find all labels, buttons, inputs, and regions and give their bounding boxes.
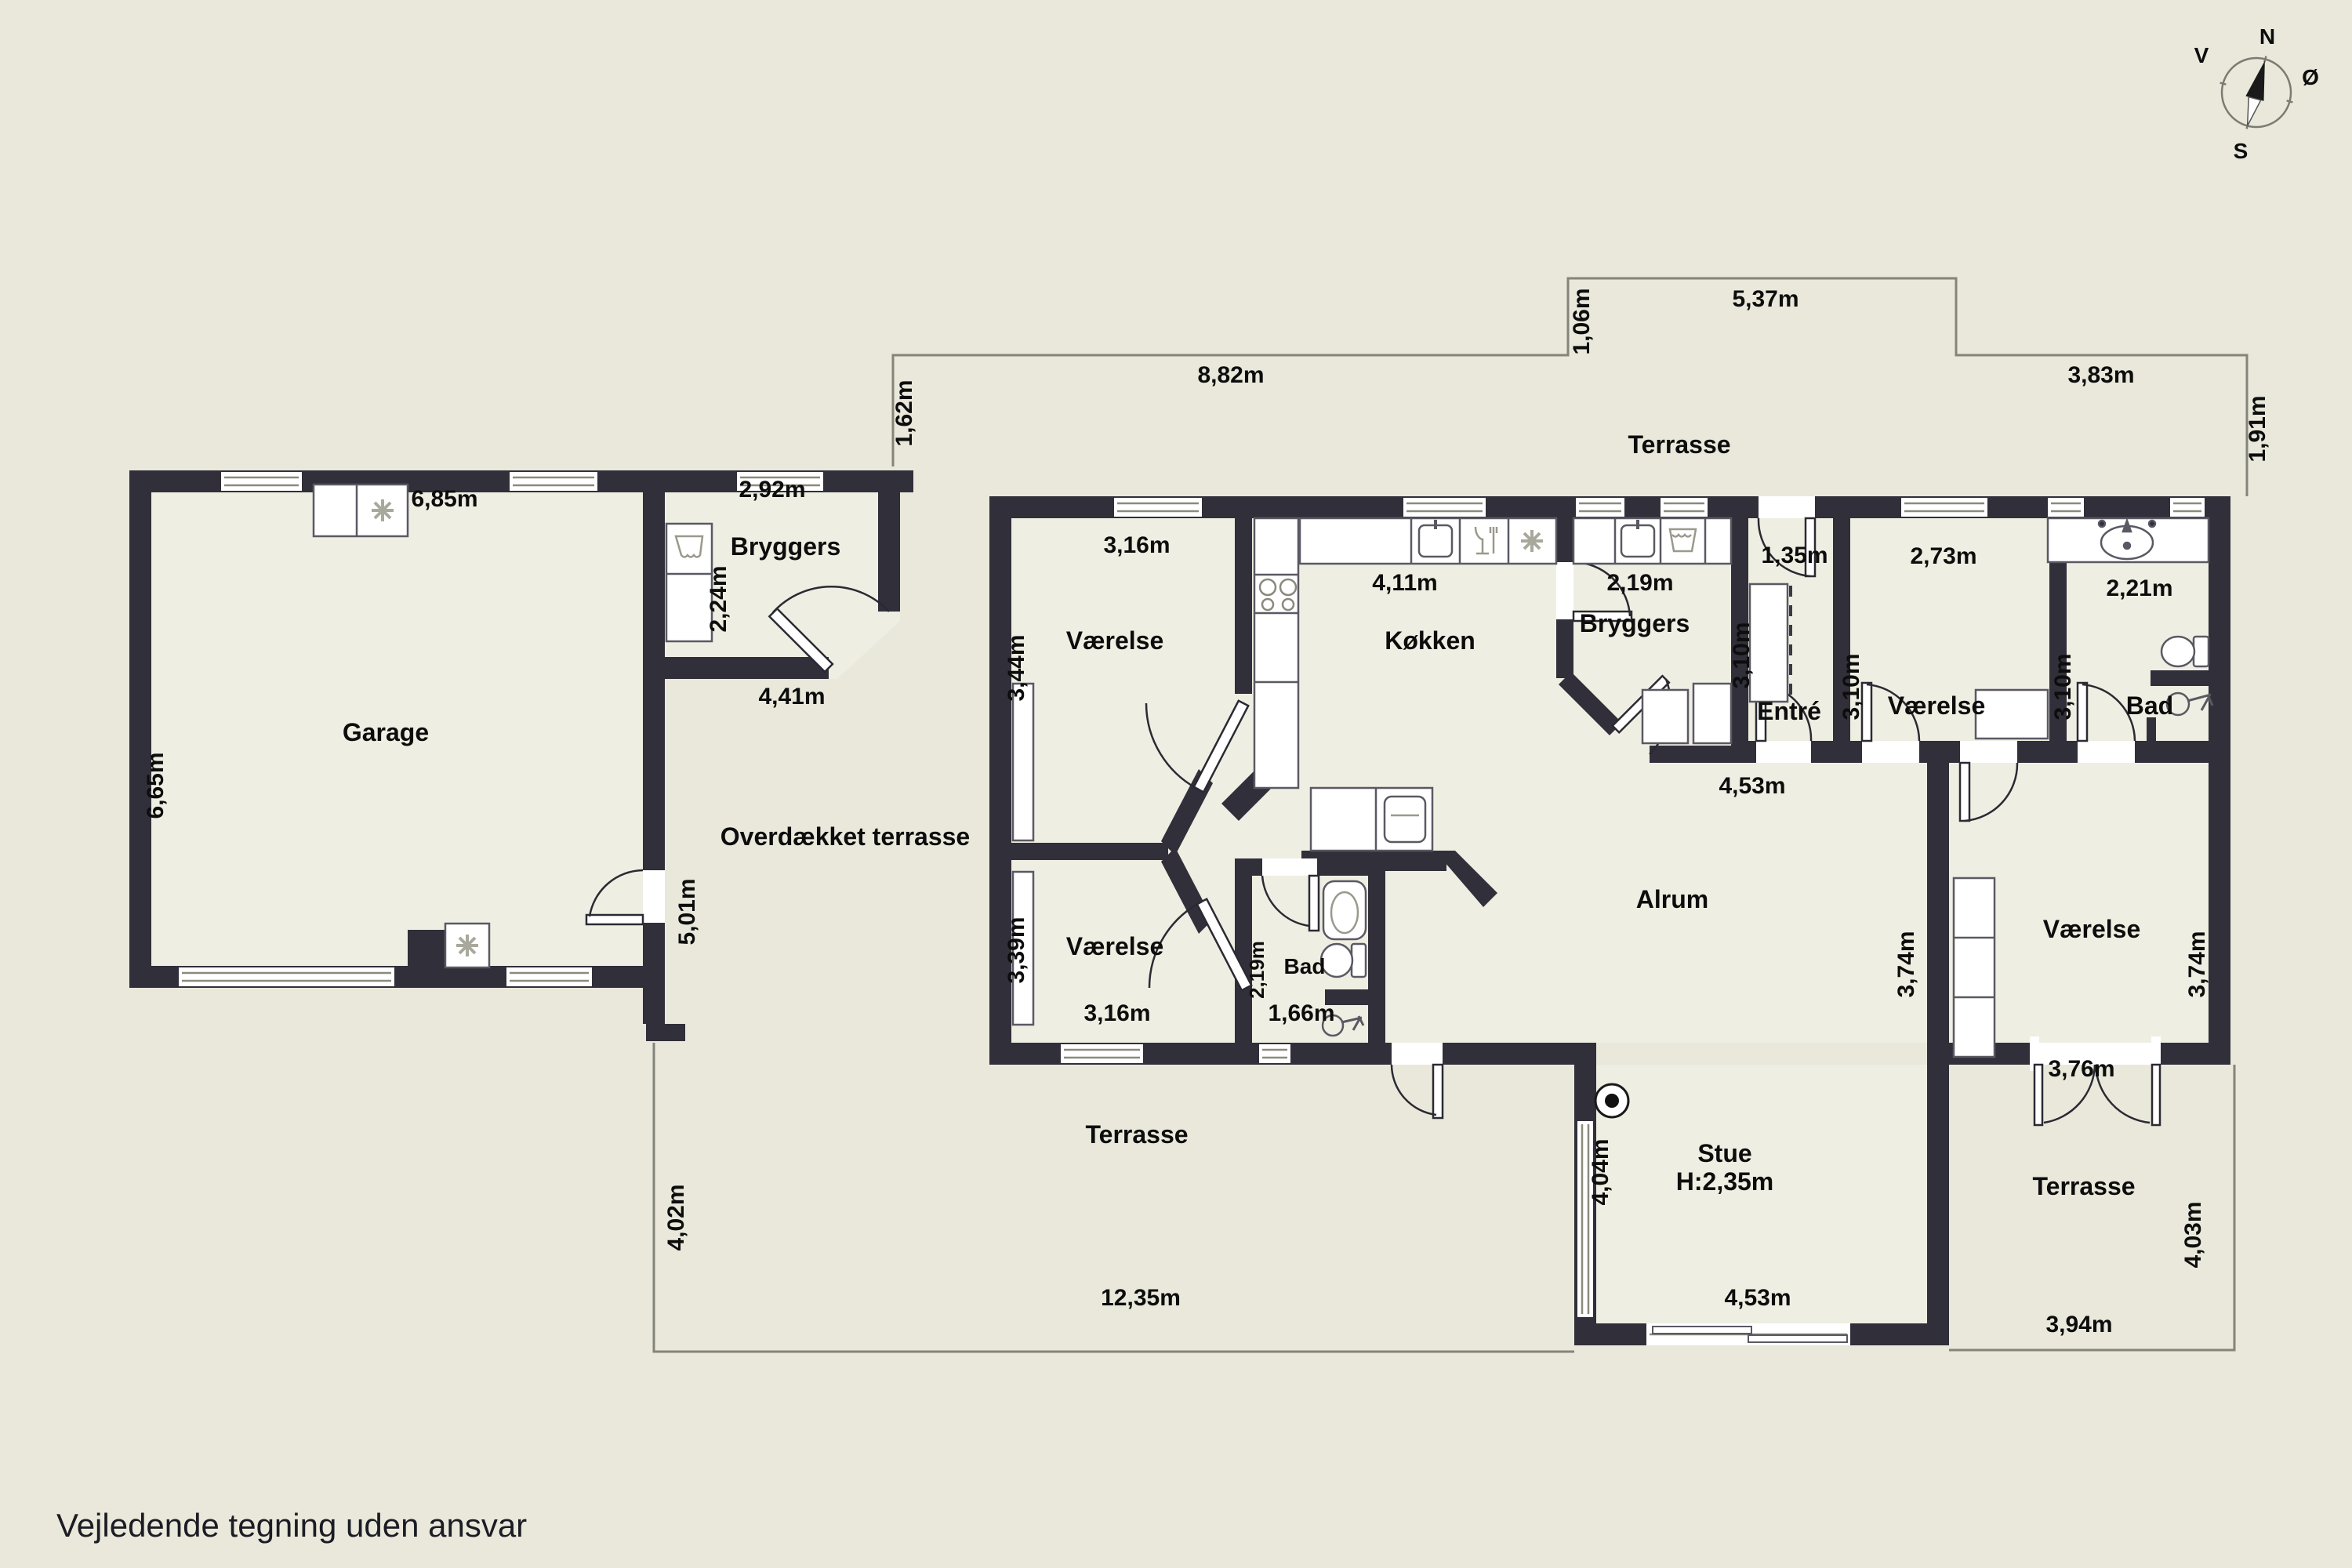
dim-label: 3,74m [2184,931,2210,997]
dim-label: 6,65m [143,752,169,818]
freezer-icon [456,935,478,956]
dim-label: 4,53m [1719,773,1785,799]
door-leaf [586,915,643,924]
dim-label: 3,10m [2050,653,2076,720]
floorplan-canvas: 6,85m6,65m2,92m2,24m4,41m5,01m8,82m1,06m… [0,0,2352,1568]
kitchen-sink [1419,525,1452,557]
wardrobe [1954,878,1994,1057]
dim-label: 2,19m [1606,570,1673,596]
door-gap [1862,741,1919,763]
room-label: Terrasse [2032,1172,2135,1200]
compass-e-label: Ø [2302,65,2319,89]
dim-label: 8,82m [1197,362,1264,388]
french-door-leaf [2034,1065,2042,1125]
dresser [1976,690,2048,739]
room-label: Stue [1697,1139,1751,1167]
window [1061,1044,1143,1063]
garage-door-gap [643,870,665,923]
window [1259,1044,1290,1063]
dim-label: 12,35m [1101,1285,1181,1311]
room-label: H:2,35m [1676,1167,1774,1196]
window [179,967,394,986]
dim-label: 3,10m [1729,622,1755,688]
compass-needle [2238,58,2274,128]
disclaimer-text: Vejledende tegning uden ansvar [56,1507,527,1544]
dim-label: 3,39m [1004,916,1029,983]
island-sink [1385,797,1425,842]
dim-label: 1,66m [1268,1000,1334,1026]
house-floor [1011,518,2209,1043]
bryggers-closet [1693,684,1731,743]
dim-label: 3,74m [1893,931,1919,997]
dim-label: 2,19m [1245,941,1269,999]
dim-label: 2,92m [739,477,805,503]
entre-closet [1750,584,1788,702]
dim-label: 1,91m [2245,395,2270,462]
compass [2210,46,2303,139]
window [510,472,597,491]
window [1114,498,1202,517]
floorplan-page: 6,85m6,65m2,92m2,24m4,41m5,01m8,82m1,06m… [0,0,2352,1568]
dim-label: 3,94m [2045,1312,2112,1338]
dim-label: 3,83m [2067,362,2134,388]
room-label: Overdækket terrasse [720,822,970,851]
terrace-door-gap [1392,1043,1443,1065]
room-label: Bryggers [731,532,841,561]
dim-label: 2,73m [1910,543,1976,569]
dim-label: 1,35m [1761,543,1828,568]
window [1901,498,1987,517]
dim-label: 4,03m [2180,1201,2206,1268]
dim-label: 1,62m [891,379,917,446]
room-label: Værelse [2043,915,2141,943]
floor-fills [151,492,2209,1323]
door-gap [2078,741,2135,763]
window [2170,498,2205,517]
bad-s-toilet [1321,944,1366,977]
front-door-gap [1759,496,1815,518]
dim-label: 3,16m [1083,1000,1150,1026]
window [506,967,592,986]
room-label: Bad [1284,954,1326,978]
door-gap [1756,741,1811,763]
door-leaf [1433,1065,1443,1118]
dim-label: 4,02m [663,1184,689,1250]
door-gap [1960,741,2017,763]
room-label: Garage [343,718,429,746]
dim-label: 3,76m [2048,1056,2114,1082]
dim-label: 2,24m [706,565,731,632]
bryggers-sink [1621,525,1654,557]
compass-s-label: S [2234,139,2249,163]
door-gap [1556,562,1573,619]
bad-s-sink [1323,881,1366,939]
bad-ne-toilet [2161,637,2209,666]
window [1661,498,1708,517]
door-arc [1392,1065,1436,1115]
fridge-icon [1521,530,1543,552]
freezer-icon [372,499,394,521]
window [2048,498,2084,517]
room-label: Køkken [1385,626,1475,655]
door-leaf [1960,763,1969,821]
room-label: Bryggers [1580,609,1690,637]
room-label: Alrum [1636,885,1708,913]
window [1403,498,1486,517]
room-label: Entré [1757,697,1821,725]
room-label: Værelse [1066,626,1164,655]
dim-label: 2,21m [2106,575,2172,601]
french-door-leaf [2152,1065,2160,1125]
dim-label: 4,04m [1588,1138,1613,1205]
fireplace [1595,1084,1628,1117]
window [221,472,302,491]
compass-n-label: N [2259,24,2275,49]
room-label: Terrasse [1085,1120,1188,1149]
dim-label: 5,37m [1732,286,1798,312]
dim-label: 4,41m [758,684,825,710]
door-leaf [1309,876,1319,931]
radiator [1013,684,1033,840]
dim-label: 5,01m [674,878,700,945]
room-label: Værelse [1888,691,1986,720]
garage-appliance-dark [408,930,445,967]
room-label: Bad [2126,691,2173,720]
compass-v-label: V [2194,43,2209,67]
room-label: Terrasse [1628,430,1730,459]
kitchen-cabinets [1254,518,1298,788]
dim-label: 6,85m [411,486,477,512]
door-leaf [2078,683,2087,741]
door-gap [1262,858,1317,876]
dim-label: 3,44m [1004,634,1029,701]
bryggers-appliance [1642,690,1688,743]
window [1576,498,1624,517]
dim-label: 3,16m [1103,532,1170,558]
dim-label: 4,53m [1724,1285,1791,1311]
dim-label: 4,11m [1372,570,1437,596]
room-label: Værelse [1066,932,1164,960]
dim-label: 3,10m [1838,653,1864,720]
dim-label: 1,06m [1569,288,1595,354]
